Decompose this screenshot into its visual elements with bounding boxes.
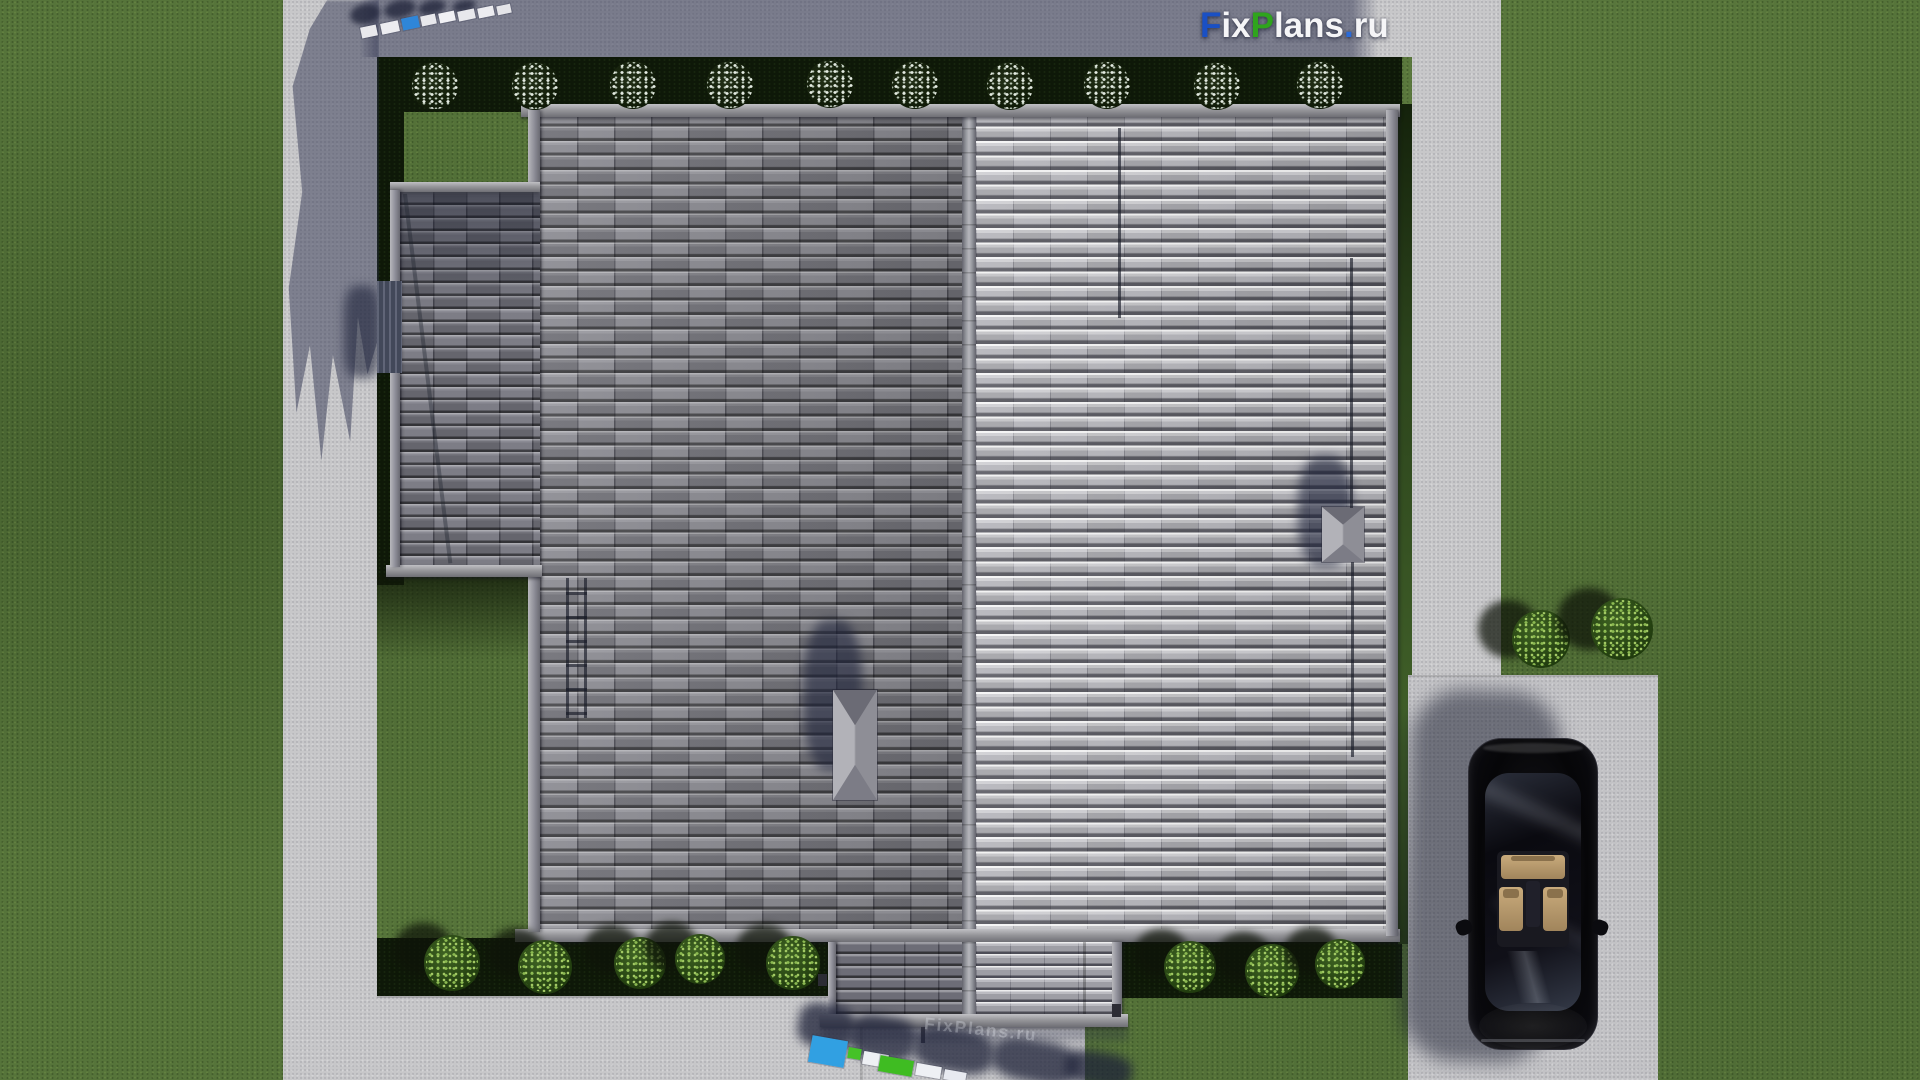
watermark-block <box>438 10 456 23</box>
watermark-block <box>477 5 495 18</box>
watermark-block <box>847 1047 862 1060</box>
bush <box>1296 61 1344 109</box>
brand-logo-letter: P <box>1251 6 1274 45</box>
brand-logo-letter: ix <box>1221 6 1250 45</box>
bush <box>518 940 572 994</box>
roof-ladder-rail <box>584 578 587 718</box>
roof-ladder-rung <box>566 712 587 715</box>
watermark-block <box>401 15 420 30</box>
bush <box>609 61 657 109</box>
roof-seam-line <box>1351 562 1354 757</box>
bush <box>891 61 939 109</box>
render-viewport: FixPlans.ru FixPlans.ru <box>0 0 1920 1080</box>
brand-logo: FixPlans.ru <box>1200 6 1389 46</box>
bush <box>675 934 725 984</box>
bush <box>411 62 459 110</box>
watermark-block <box>496 4 512 16</box>
bush <box>766 936 820 990</box>
bush <box>1193 62 1241 110</box>
roof-seam-line <box>1350 258 1353 508</box>
brand-logo-letter: lans <box>1274 6 1344 45</box>
bush <box>1083 61 1131 109</box>
watermark-block <box>380 20 400 35</box>
bush <box>1315 939 1365 989</box>
bush <box>1591 598 1653 660</box>
watermark-block <box>457 8 476 21</box>
roof-ladder-rung <box>566 688 587 691</box>
decor-layer <box>0 0 1920 1080</box>
roof-seam-line <box>1118 128 1121 318</box>
roof-ladder-rung <box>566 616 587 619</box>
watermark-block <box>420 14 437 27</box>
bush <box>986 62 1034 110</box>
bush <box>1164 941 1216 993</box>
bush <box>806 60 854 108</box>
bush <box>424 935 480 991</box>
brand-logo-letter: F <box>1200 6 1221 45</box>
roof-ladder-rung <box>566 664 587 667</box>
brand-logo-letter: . <box>1344 6 1354 45</box>
bush <box>511 62 559 110</box>
watermark-shadow <box>1064 1047 1135 1080</box>
watermark-block <box>878 1055 914 1077</box>
watermark-block <box>808 1035 848 1068</box>
roof-ladder-rail <box>566 578 569 718</box>
bush <box>706 61 754 109</box>
brand-logo-letter: ru <box>1354 6 1389 45</box>
roof-ladder-rung <box>566 592 587 595</box>
watermark-shadow <box>348 1 382 27</box>
roof-ladder-rung <box>566 640 587 643</box>
watermark-block <box>360 24 378 38</box>
